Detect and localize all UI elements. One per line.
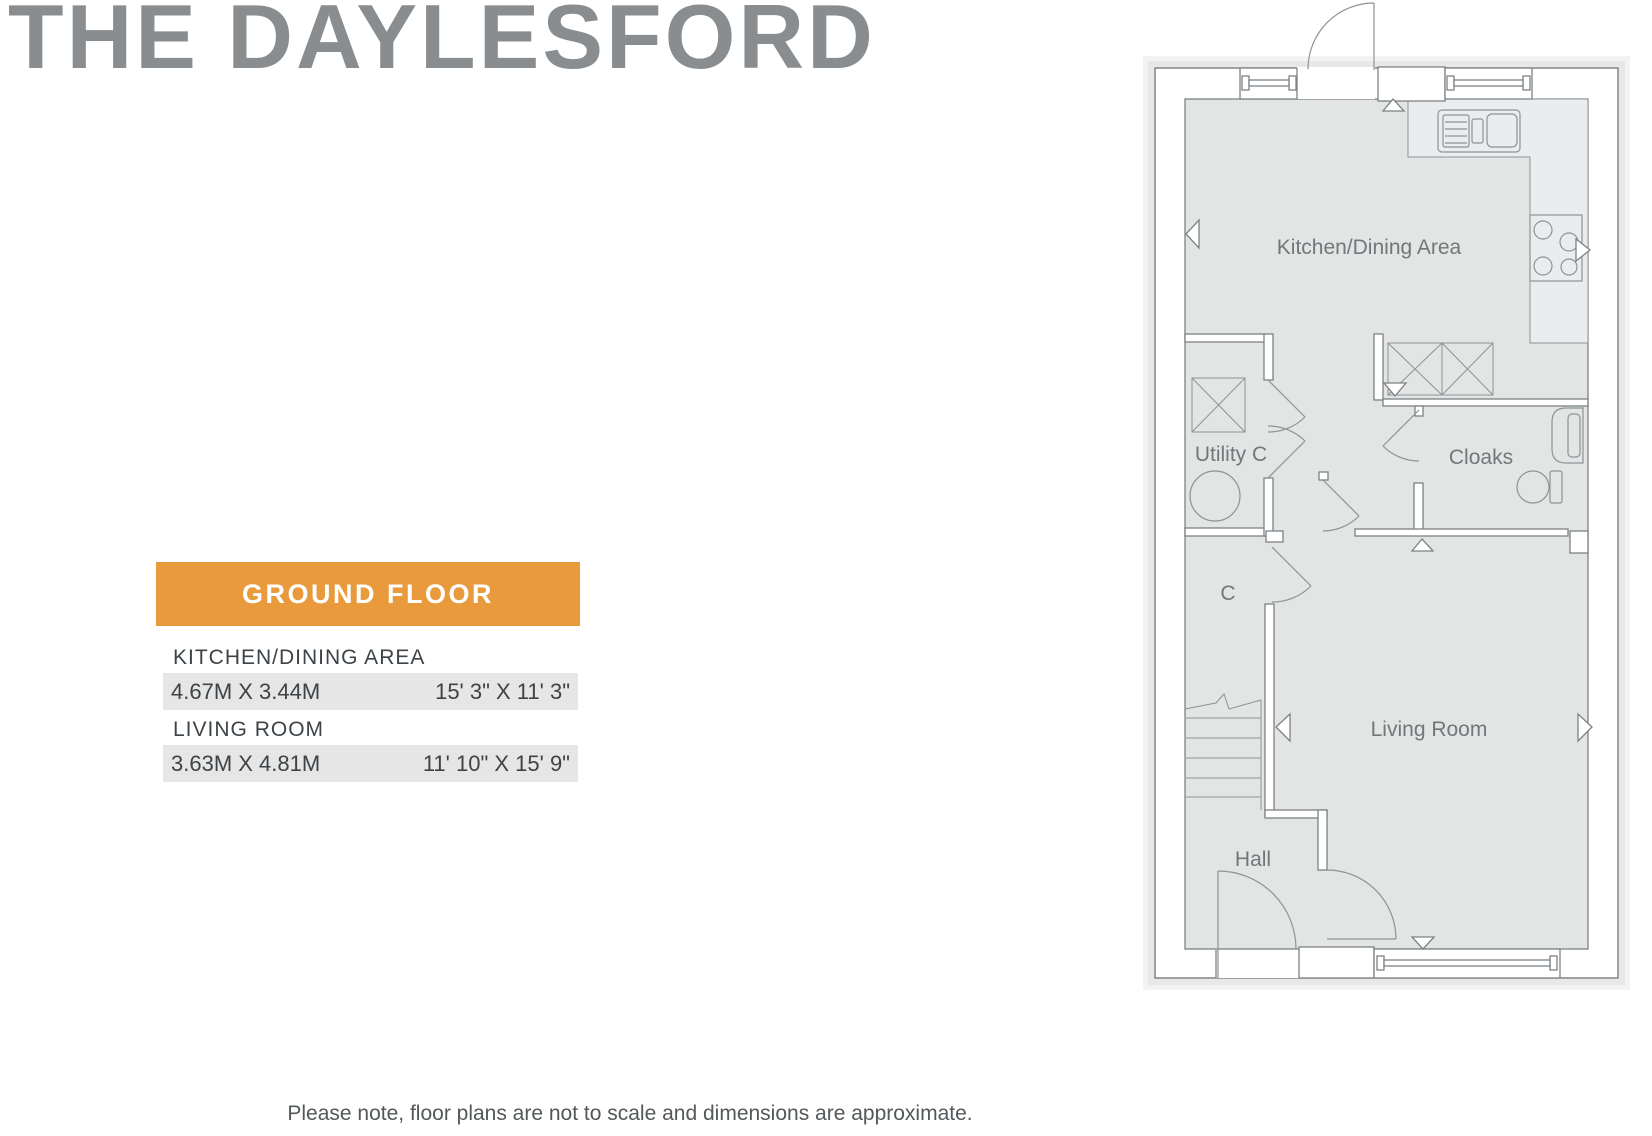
floor-plan: Kitchen/Dining Area Utility C Cloaks C L… (0, 0, 1652, 1136)
label-cupboard: C (1220, 582, 1235, 605)
bottom-wall-panel (1299, 947, 1374, 978)
top-wall-panel (1378, 67, 1445, 101)
window-bottom (1374, 949, 1560, 978)
window-top-left (1240, 68, 1298, 99)
label-hall: Hall (1235, 848, 1271, 871)
label-cloaks: Cloaks (1449, 446, 1513, 469)
wall-pier (1570, 531, 1588, 553)
floor-area (1185, 99, 1588, 949)
label-utility: Utility C (1195, 443, 1267, 466)
label-living: Living Room (1371, 718, 1488, 741)
disclaimer-note: Please note, floor plans are not to scal… (150, 1102, 1110, 1126)
front-door-opening (1297, 67, 1375, 99)
window-top-right (1445, 68, 1532, 99)
label-kitchen: Kitchen/Dining Area (1277, 236, 1462, 259)
hall-door-opening (1216, 950, 1300, 978)
